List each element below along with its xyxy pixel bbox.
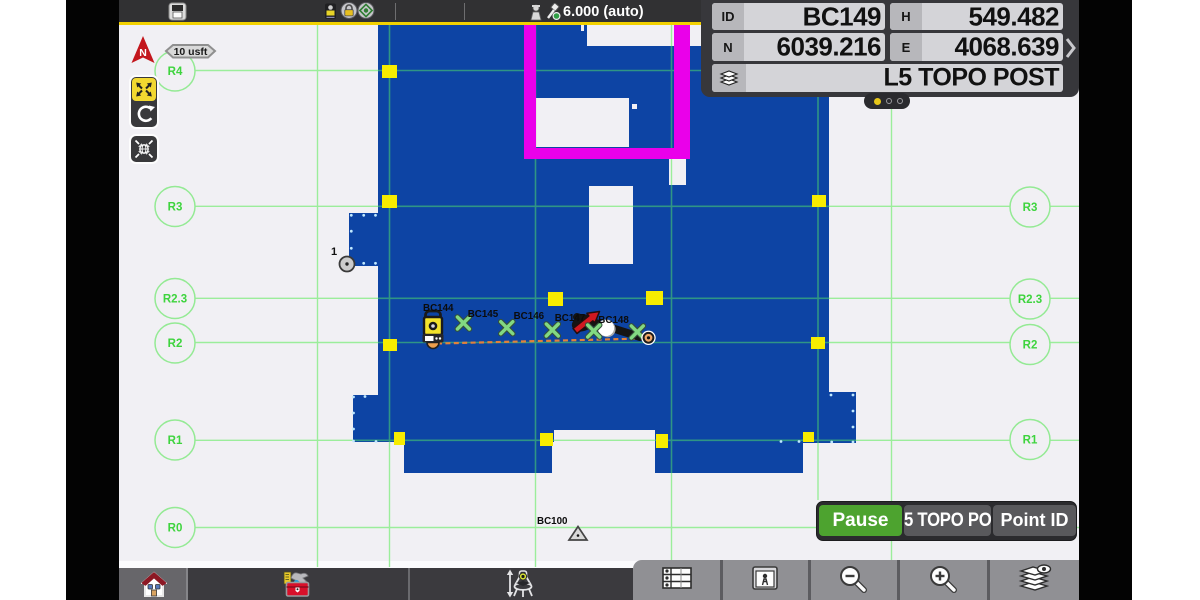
svg-text:BC145: BC145	[468, 309, 499, 320]
svg-text:BC100: BC100	[537, 516, 568, 527]
svg-text:N: N	[139, 47, 147, 59]
svg-text:R1: R1	[1023, 435, 1038, 447]
svg-text:R1: R1	[168, 435, 183, 447]
svg-text:BC144: BC144	[423, 303, 454, 314]
svg-text:R3: R3	[168, 202, 183, 214]
svg-text:R4: R4	[168, 66, 183, 78]
svg-text:R2.3: R2.3	[1018, 294, 1042, 306]
svg-text:R2: R2	[168, 338, 183, 350]
svg-text:R3: R3	[1023, 202, 1038, 214]
svg-text:1: 1	[331, 246, 337, 258]
svg-text:BC147: BC147	[555, 313, 586, 324]
svg-text:BC146: BC146	[514, 311, 545, 322]
svg-text:R2: R2	[1023, 340, 1038, 352]
svg-text:R0: R0	[168, 523, 183, 535]
svg-text:BC148: BC148	[598, 315, 629, 326]
svg-text:10 usft: 10 usft	[174, 46, 208, 58]
svg-text:R2.3: R2.3	[163, 294, 187, 306]
